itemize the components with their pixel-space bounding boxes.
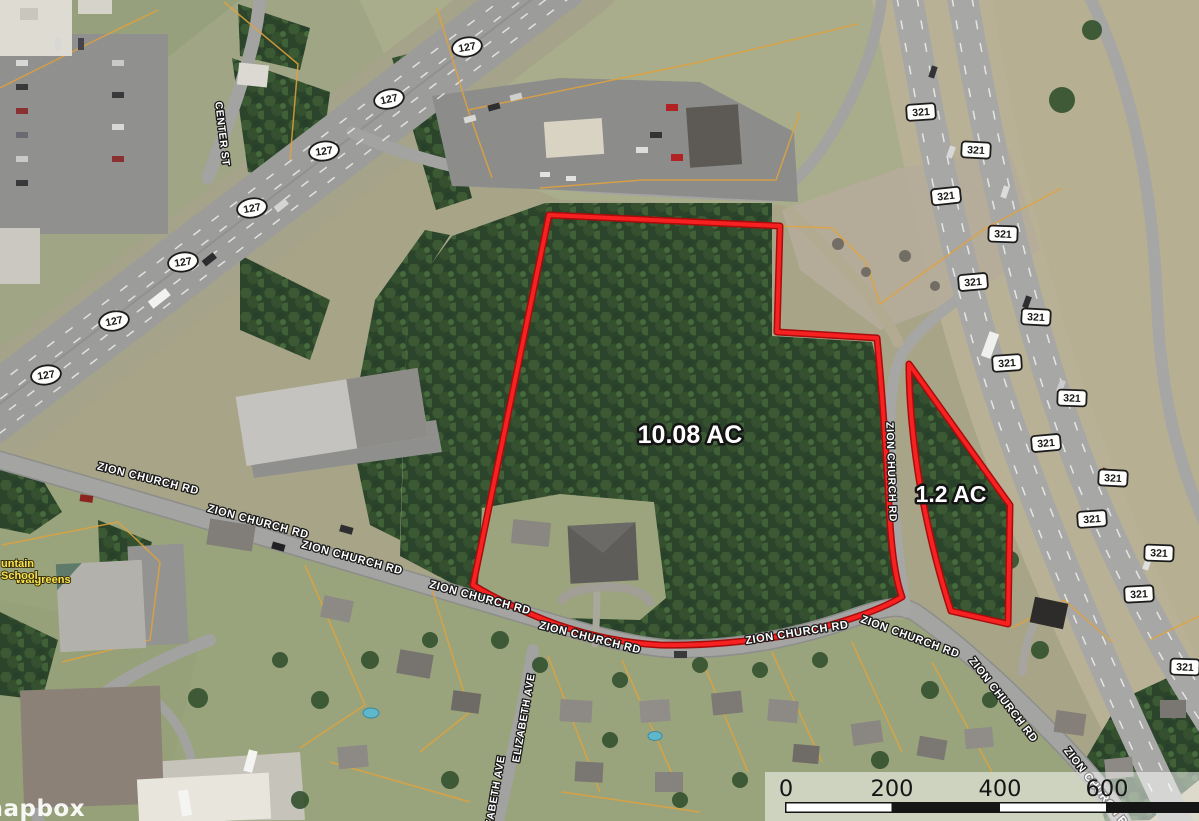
house — [237, 62, 269, 87]
svg-text:321: 321 — [967, 144, 985, 157]
svg-text:127: 127 — [315, 144, 334, 158]
house — [1054, 710, 1087, 736]
satellite-map-canvas[interactable]: ZION CHURCH RD ZION CHURCH RD ZION CHURC… — [0, 0, 1199, 821]
scale-tick-0: 0 — [779, 776, 793, 802]
acreage-label-main: 10.08 AC — [638, 421, 743, 449]
poi-label-edge-line2: School — [1, 570, 38, 582]
svg-text:321: 321 — [1176, 661, 1194, 674]
route-321-shield: 321 — [958, 273, 988, 291]
route-321-shield: 321 — [1077, 510, 1107, 528]
house — [655, 772, 683, 792]
svg-text:321: 321 — [1063, 392, 1081, 405]
scale-tick-600: 600 — [1086, 776, 1129, 802]
house — [451, 690, 482, 714]
route-321-shield: 321 — [931, 187, 962, 206]
commercial-building — [686, 104, 742, 167]
poi-label-edge-line1: untain — [1, 558, 34, 570]
house — [792, 744, 819, 764]
svg-text:321: 321 — [994, 228, 1012, 241]
restaurant-building — [544, 118, 604, 158]
svg-text:321: 321 — [1027, 311, 1045, 324]
route-321-shield: 321 — [1170, 658, 1199, 675]
svg-text:321: 321 — [998, 357, 1016, 370]
svg-text:321: 321 — [1130, 588, 1148, 601]
route-321-shield: 321 — [988, 225, 1018, 242]
house — [767, 699, 799, 724]
svg-text:321: 321 — [1104, 472, 1122, 485]
house — [337, 745, 369, 770]
house — [639, 699, 670, 723]
scale-tick-400: 400 — [979, 776, 1022, 802]
route-321-shield: 321 — [906, 103, 936, 121]
house — [964, 727, 994, 749]
swimming-pool — [648, 732, 662, 741]
acreage-label-east: 1.2 AC — [916, 481, 987, 507]
house — [511, 519, 551, 547]
church-annex-building — [137, 773, 271, 821]
house — [1160, 700, 1186, 718]
map-viewport: ZION CHURCH RD ZION CHURCH RD ZION CHURC… — [0, 0, 1199, 821]
svg-text:321: 321 — [1083, 513, 1101, 526]
church-in-parcel-building — [568, 522, 639, 583]
svg-text:321: 321 — [964, 276, 983, 289]
scale-tick-200: 200 — [871, 776, 914, 802]
house — [851, 720, 884, 746]
svg-text:321: 321 — [1150, 547, 1168, 560]
swimming-pool — [363, 708, 379, 718]
route-321-shield: 321 — [1098, 469, 1128, 486]
route-321-shield: 321 — [1031, 434, 1061, 452]
route-321-shield: 321 — [1057, 389, 1087, 406]
house — [574, 761, 603, 782]
house — [559, 699, 592, 723]
route-321-shield: 321 — [992, 354, 1022, 372]
scale-bar: 0 200 400 600 — [765, 772, 1199, 821]
route-321-shield: 321 — [961, 141, 991, 158]
svg-text:321: 321 — [937, 190, 956, 204]
route-321-shield: 321 — [1124, 585, 1154, 602]
mapbox-watermark: mapbox — [0, 796, 85, 821]
svg-text:321: 321 — [1037, 437, 1056, 450]
route-321-shield: 321 — [1144, 544, 1174, 561]
house — [711, 690, 743, 715]
route-321-shield: 321 — [1021, 308, 1051, 325]
svg-text:321: 321 — [912, 106, 930, 119]
